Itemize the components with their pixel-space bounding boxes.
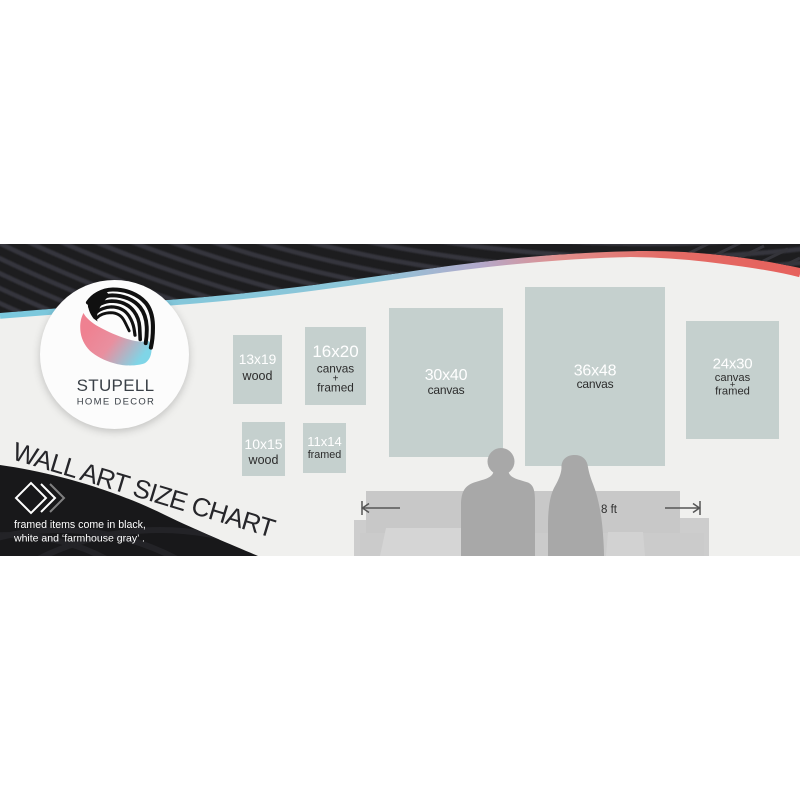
svg-text:30x40: 30x40 xyxy=(425,367,468,384)
svg-text:wood: wood xyxy=(242,369,273,383)
svg-text:8 ft: 8 ft xyxy=(601,504,618,516)
svg-text:13x19: 13x19 xyxy=(239,352,277,367)
svg-text:white and ‘farmhouse gray’ .: white and ‘farmhouse gray’ . xyxy=(13,533,145,545)
svg-text:16x20: 16x20 xyxy=(312,342,358,361)
svg-text:canvas: canvas xyxy=(577,377,614,391)
svg-text:framed: framed xyxy=(715,386,750,398)
svg-text:framed: framed xyxy=(317,381,354,395)
svg-text:HOME DECOR: HOME DECOR xyxy=(77,397,155,408)
svg-text:10x15: 10x15 xyxy=(244,436,282,452)
svg-text:canvas: canvas xyxy=(428,383,465,397)
svg-text:framed items come in black,: framed items come in black, xyxy=(14,519,146,531)
svg-text:24x30: 24x30 xyxy=(713,356,753,373)
svg-text:wood: wood xyxy=(248,453,279,467)
svg-text:STUPELL: STUPELL xyxy=(77,376,155,395)
svg-text:framed: framed xyxy=(308,449,342,461)
svg-text:11x14: 11x14 xyxy=(307,434,341,449)
